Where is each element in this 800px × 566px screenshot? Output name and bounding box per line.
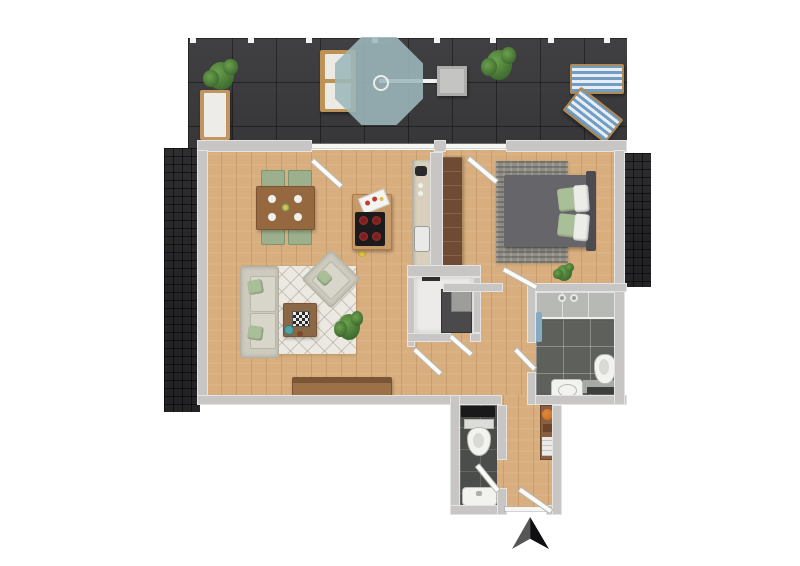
- living-plant: [338, 314, 360, 340]
- bed-pillow-white: [573, 213, 590, 241]
- bath-mat-dark: [587, 387, 615, 394]
- wc-toilet-seat: [473, 433, 484, 448]
- wall-top-post: [434, 140, 446, 152]
- sofa-pillow: [247, 279, 264, 295]
- railing-post: [548, 38, 554, 43]
- railing-post: [248, 38, 254, 43]
- cabinet-shelf-item: [543, 424, 552, 432]
- terrace-plant-right: [486, 50, 512, 80]
- kitchen-faucet: [415, 166, 427, 176]
- railing-post: [306, 38, 312, 43]
- counter-knob: [418, 191, 423, 196]
- tomato-slice: [371, 196, 378, 203]
- burner: [372, 216, 381, 225]
- wall-top-right: [506, 140, 627, 152]
- kitchen-sink: [414, 226, 430, 252]
- wc-shelf: [461, 406, 495, 417]
- railing-post: [604, 38, 610, 43]
- counter-knob: [418, 183, 423, 188]
- wall-below-kitchen: [407, 265, 481, 277]
- umbrella-side-table: [437, 66, 467, 96]
- burner: [372, 232, 381, 241]
- shower-glass: [536, 317, 615, 319]
- dining-table: [256, 186, 315, 230]
- umbrella-hub: [373, 75, 389, 91]
- bed-pillow-white: [573, 185, 590, 213]
- wall-bath-left-a: [527, 283, 536, 343]
- sofa-pillow: [247, 325, 264, 341]
- terrace-plant-left: [208, 62, 234, 90]
- shower-head: [558, 294, 566, 302]
- wardrobe: [443, 157, 462, 270]
- wc-sink: [462, 487, 497, 506]
- north-arrow: [512, 517, 549, 549]
- shower-head: [570, 294, 578, 302]
- plate: [268, 213, 276, 221]
- tomato-slice: [364, 200, 371, 207]
- plate: [294, 195, 302, 203]
- wc-faucet: [476, 491, 482, 496]
- wall-left: [197, 150, 208, 405]
- plate: [268, 195, 276, 203]
- railing-post: [434, 38, 440, 43]
- cooktop: [355, 212, 385, 246]
- roof-slope-left: [164, 148, 200, 412]
- terrace-door-sill-living: [312, 144, 434, 148]
- wall-ext-right: [552, 405, 562, 515]
- terrace-door-sill-bedroom: [446, 144, 506, 148]
- bench-cushion: [204, 93, 226, 137]
- burner: [359, 232, 368, 241]
- chessboard: [292, 311, 310, 327]
- toilet-seat: [599, 359, 609, 375]
- sideboard-top-edge: [293, 378, 391, 383]
- burner: [359, 216, 368, 225]
- plate: [294, 213, 302, 221]
- towel: [536, 312, 542, 342]
- bedroom-plant: [556, 265, 572, 281]
- railing-post: [190, 38, 196, 43]
- railing-post: [490, 38, 496, 43]
- table-centerpiece: [281, 203, 290, 212]
- garden-bench: [200, 90, 230, 140]
- wall-bottom-bath: [533, 395, 627, 405]
- dryer-top: [451, 290, 472, 312]
- wall-right: [614, 150, 625, 405]
- wall-top-left: [197, 140, 312, 152]
- wall-ext-left: [450, 395, 460, 515]
- wall-storage-bottom-a: [407, 333, 451, 342]
- floor-plan: [0, 0, 800, 566]
- yellow-decor: [358, 250, 366, 257]
- lemon-slice: [379, 196, 384, 201]
- wall-bedroom-bottom-a: [443, 283, 503, 292]
- teal-cup: [284, 325, 294, 335]
- wall-bedroom-bottom-b: [535, 283, 627, 292]
- wall-bath-left-b: [527, 372, 536, 405]
- small-bowl: [297, 331, 303, 337]
- toilet: [594, 354, 616, 384]
- wall-kitchen: [430, 152, 443, 270]
- wall-wc-right-a: [497, 405, 507, 460]
- roof-slope-right: [624, 153, 651, 287]
- wall-storage-bottom-b: [470, 333, 481, 342]
